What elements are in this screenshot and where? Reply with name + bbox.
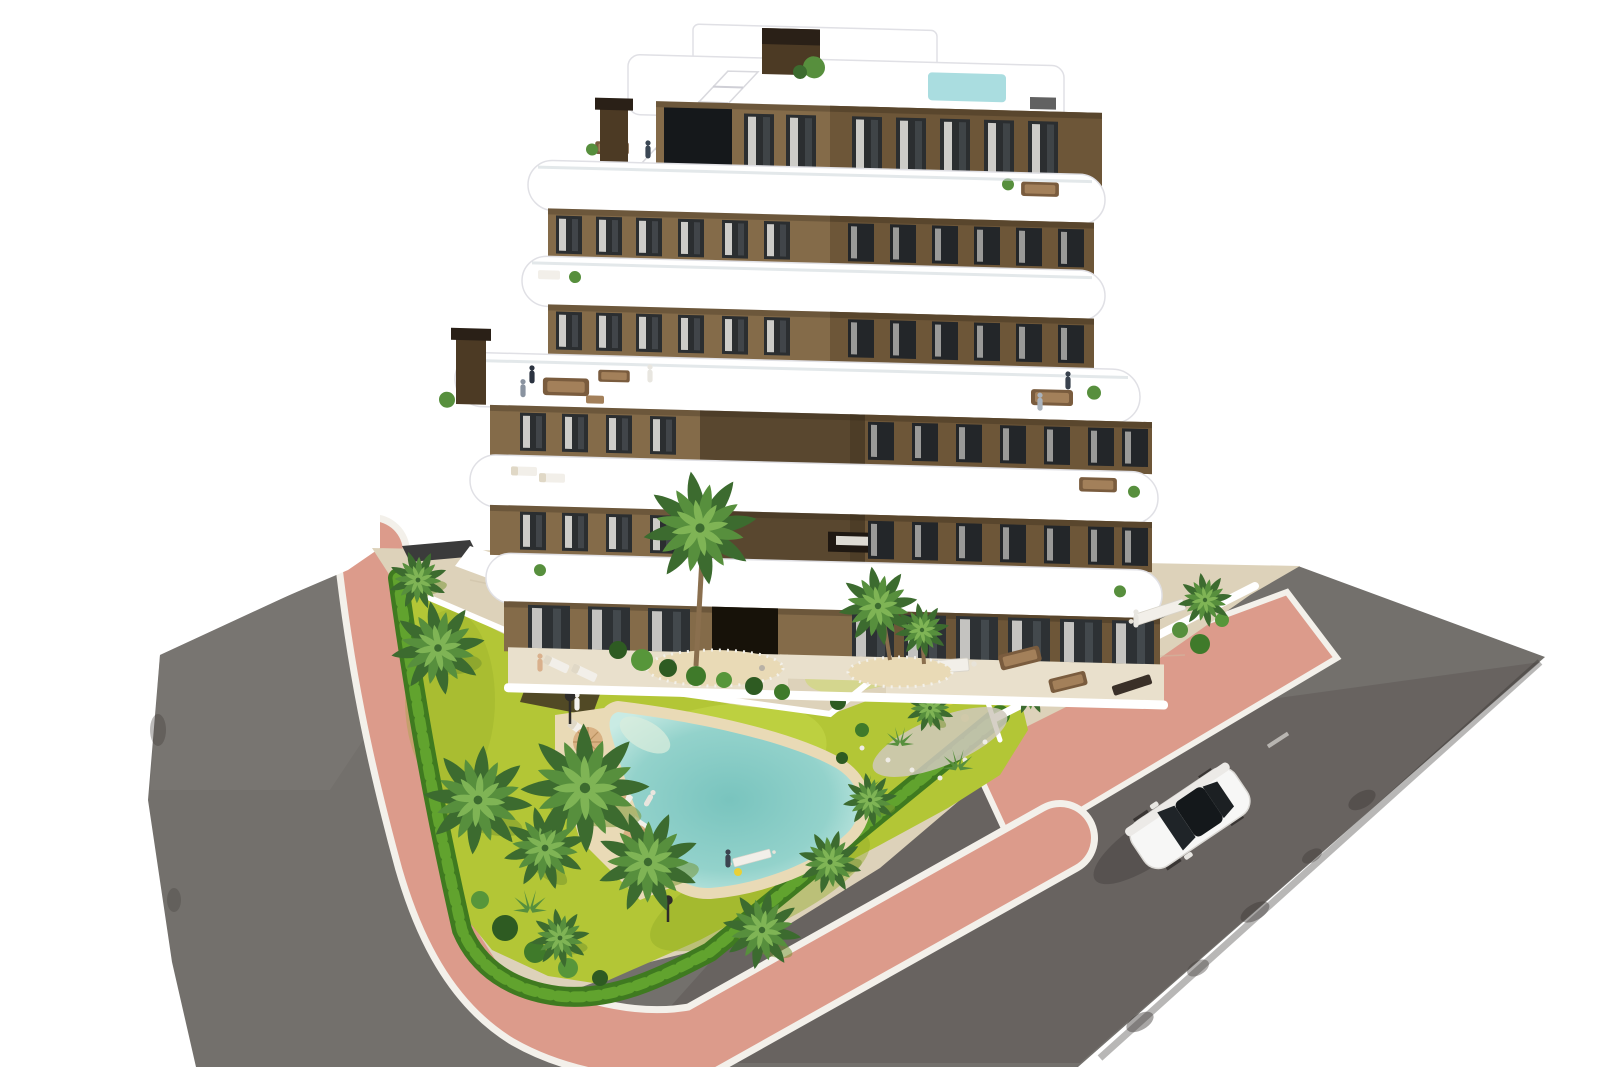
terrace-furniture bbox=[539, 473, 565, 483]
glass-wall bbox=[664, 107, 732, 171]
render-canvas bbox=[0, 0, 1600, 1067]
terrace-furniture bbox=[1021, 182, 1059, 197]
person bbox=[645, 140, 650, 158]
person bbox=[574, 692, 579, 710]
rooftop-pool bbox=[928, 72, 1006, 102]
architectural-rendering bbox=[0, 0, 1600, 1067]
chimney bbox=[600, 104, 628, 167]
pool-toy bbox=[734, 868, 742, 876]
person bbox=[725, 849, 730, 867]
chimney bbox=[456, 334, 486, 405]
person bbox=[1133, 609, 1138, 627]
terrace-furniture bbox=[1079, 477, 1117, 492]
roof-vent bbox=[1030, 97, 1056, 110]
terrace-furniture bbox=[511, 466, 537, 476]
terrace-furniture bbox=[538, 270, 560, 280]
recessed-court bbox=[700, 410, 865, 466]
